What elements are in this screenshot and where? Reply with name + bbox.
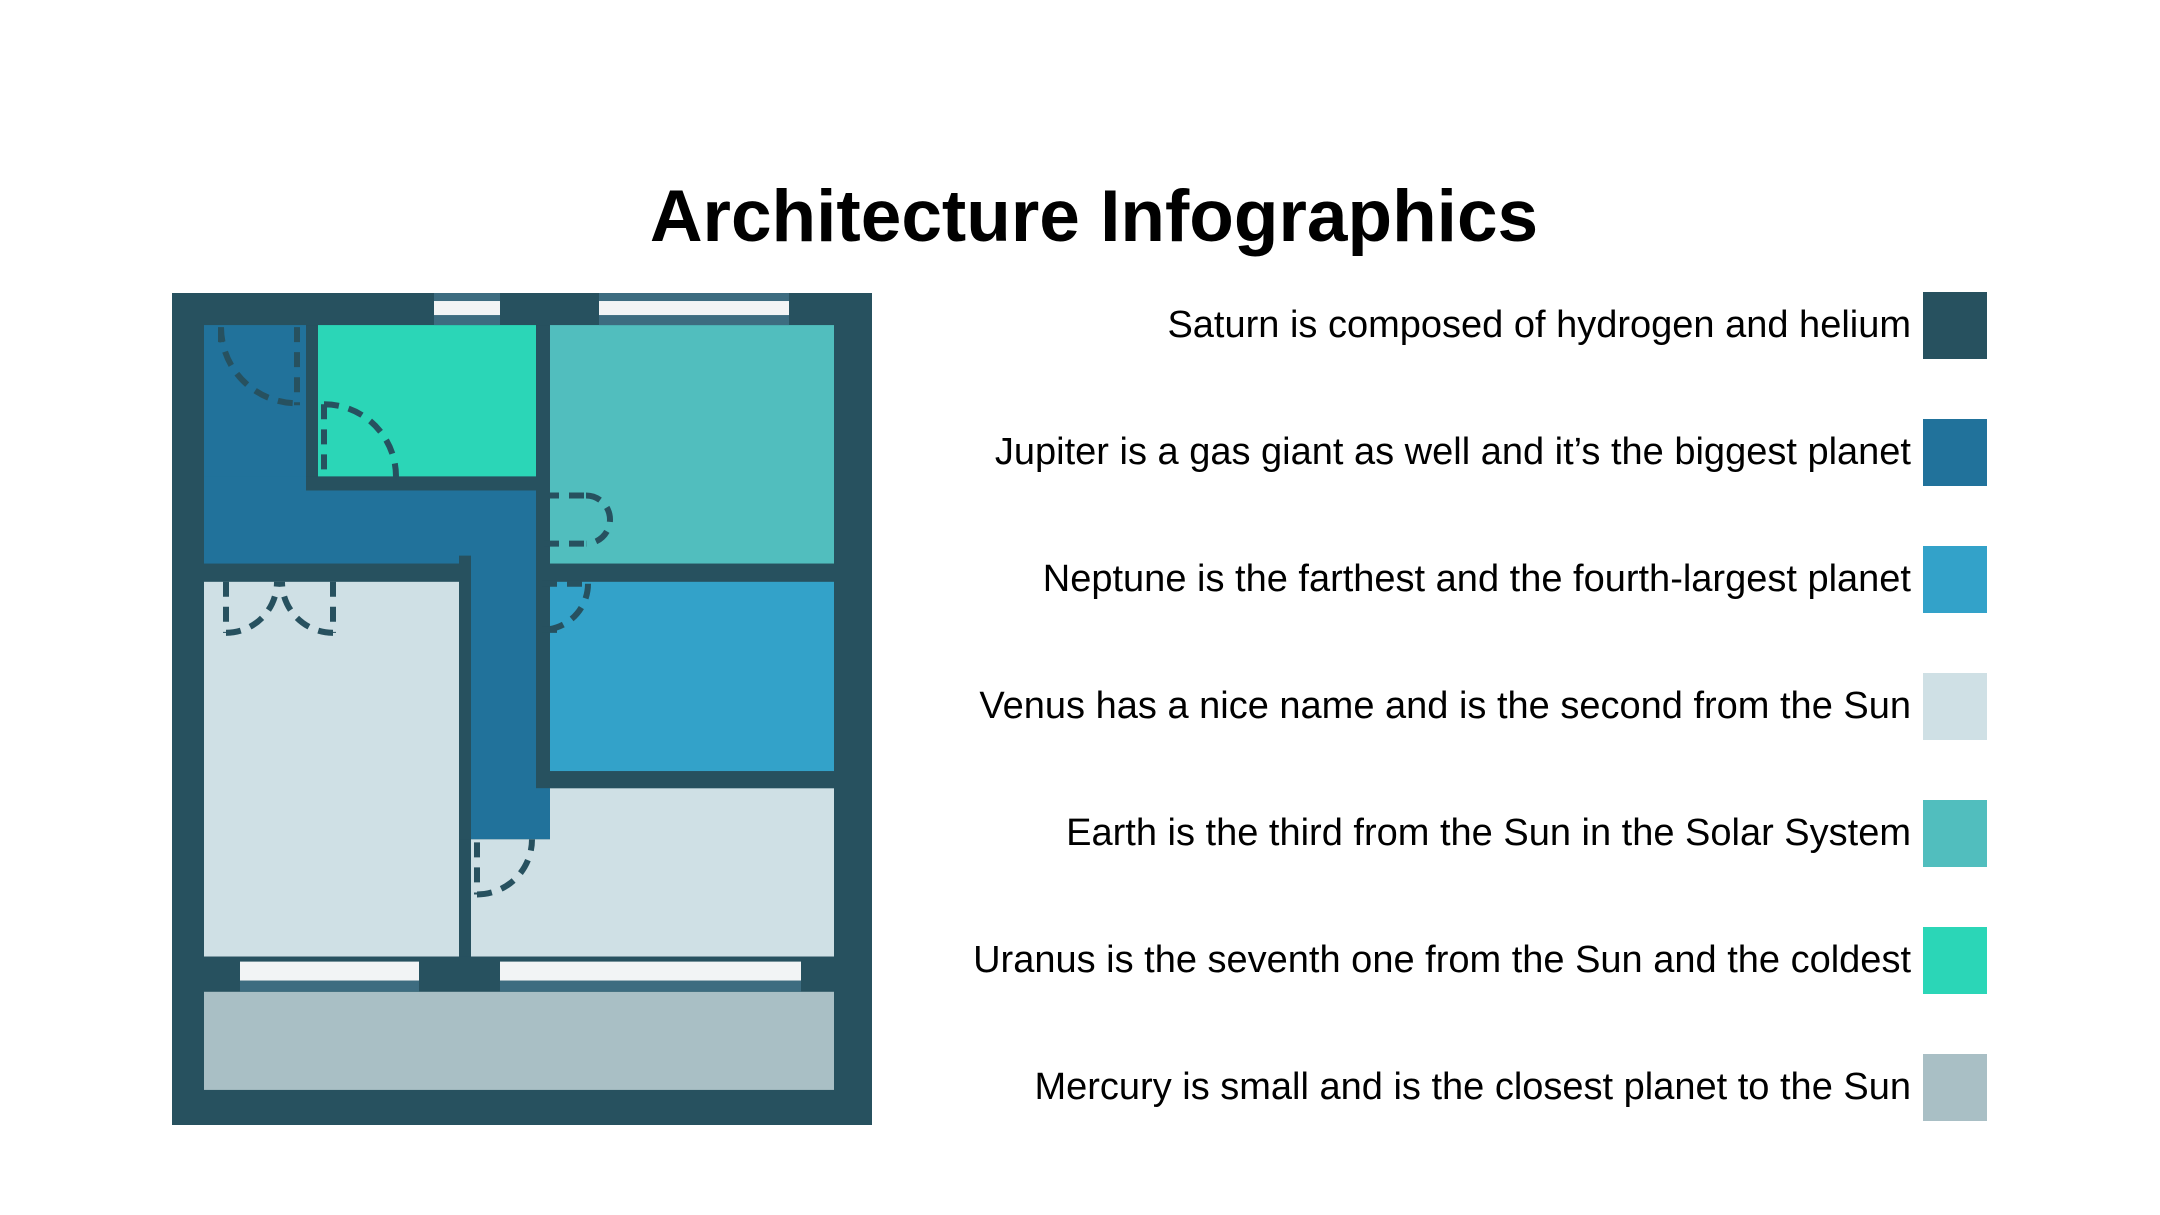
legend-label: Neptune is the farthest and the fourth-l… [1043, 558, 1911, 601]
living-room-right [550, 788, 834, 956]
living-room-left [204, 582, 459, 957]
wall-right-room-bottom [550, 771, 834, 788]
uranus-color-swatch [1923, 927, 1987, 994]
jupiter-color-swatch [1923, 419, 1987, 486]
balcony-window-left-glass [240, 962, 419, 981]
mercury-color-swatch [1923, 1054, 1987, 1121]
venus-color-swatch [1923, 673, 1987, 740]
room-top-small-uranus [318, 325, 536, 476]
neptune-color-swatch [1923, 546, 1987, 613]
balcony-window-right-frame [500, 981, 801, 992]
legend-item: Saturn is composed of hydrogen and heliu… [987, 292, 1987, 359]
balcony-window-right-glass [500, 962, 801, 981]
saturn-color-swatch [1923, 292, 1987, 359]
balcony-window-left-frame [240, 981, 419, 992]
legend-label: Mercury is small and is the closest plan… [1034, 1066, 1911, 1109]
top-window-small-glass [434, 301, 500, 315]
wall-corridor-left [459, 556, 471, 840]
wall-small-room-bottom [306, 476, 550, 490]
legend-label: Venus has a nice name and is the second … [979, 685, 1911, 728]
legend-label: Earth is the third from the Sun in the S… [1066, 812, 1911, 855]
legend-item: Jupiter is a gas giant as well and it’s … [987, 419, 1987, 486]
legend: Saturn is composed of hydrogen and heliu… [987, 292, 1987, 1181]
legend-item: Neptune is the farthest and the fourth-l… [987, 546, 1987, 613]
balcony-mercury [204, 992, 834, 1090]
legend-item: Earth is the third from the Sun in the S… [987, 800, 1987, 867]
wall-between-right-rooms [550, 564, 834, 582]
room-right-neptune [550, 582, 834, 771]
legend-label: Uranus is the seventh one from the Sun a… [973, 939, 1911, 982]
wall-living-top [204, 564, 459, 582]
legend-label: Jupiter is a gas giant as well and it’s … [995, 431, 1911, 474]
earth-color-swatch [1923, 800, 1987, 867]
top-window-large-glass [599, 301, 789, 315]
wall-corridor-right [536, 325, 550, 788]
legend-item: Venus has a nice name and is the second … [987, 673, 1987, 740]
legend-item: Uranus is the seventh one from the Sun a… [987, 927, 1987, 994]
living-room-center [471, 839, 550, 956]
room-top-right-earth [550, 325, 834, 564]
legend-label: Saturn is composed of hydrogen and heliu… [1167, 304, 1911, 347]
page-title: Architecture Infographics [0, 177, 2160, 257]
legend-item: Mercury is small and is the closest plan… [987, 1054, 1987, 1121]
floor-plan [172, 293, 872, 1125]
wall-small-room-left [306, 325, 318, 490]
